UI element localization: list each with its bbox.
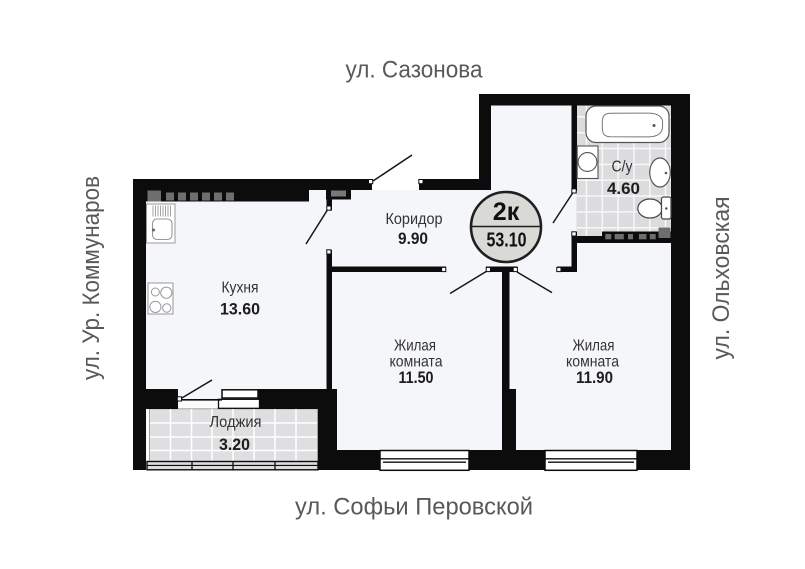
svg-text:Жилая: Жилая: [394, 338, 436, 355]
svg-text:Коридор: Коридор: [386, 211, 443, 228]
svg-text:ул. Ур. Коммунаров: ул. Ур. Коммунаров: [78, 176, 105, 380]
svg-text:9.90: 9.90: [398, 230, 428, 248]
svg-text:Кухня: Кухня: [222, 280, 259, 297]
svg-text:Жилая: Жилая: [573, 338, 615, 355]
svg-text:комната: комната: [566, 354, 619, 371]
svg-text:13.60: 13.60: [220, 301, 260, 319]
svg-text:2к: 2к: [493, 198, 520, 226]
svg-text:4.60: 4.60: [607, 180, 640, 198]
svg-text:3.20: 3.20: [219, 436, 250, 454]
svg-text:ул. Софьи Перовской: ул. Софьи Перовской: [295, 494, 533, 521]
svg-text:11.50: 11.50: [399, 369, 434, 387]
svg-text:Лоджия: Лоджия: [210, 414, 262, 431]
svg-text:ул. Ольховская: ул. Ольховская: [708, 197, 735, 360]
svg-text:ул. Сазонова: ул. Сазонова: [346, 57, 483, 84]
svg-text:С/у: С/у: [612, 159, 633, 176]
svg-text:комната: комната: [390, 354, 443, 371]
svg-text:11.90: 11.90: [576, 369, 613, 387]
svg-text:53.10: 53.10: [487, 229, 527, 252]
